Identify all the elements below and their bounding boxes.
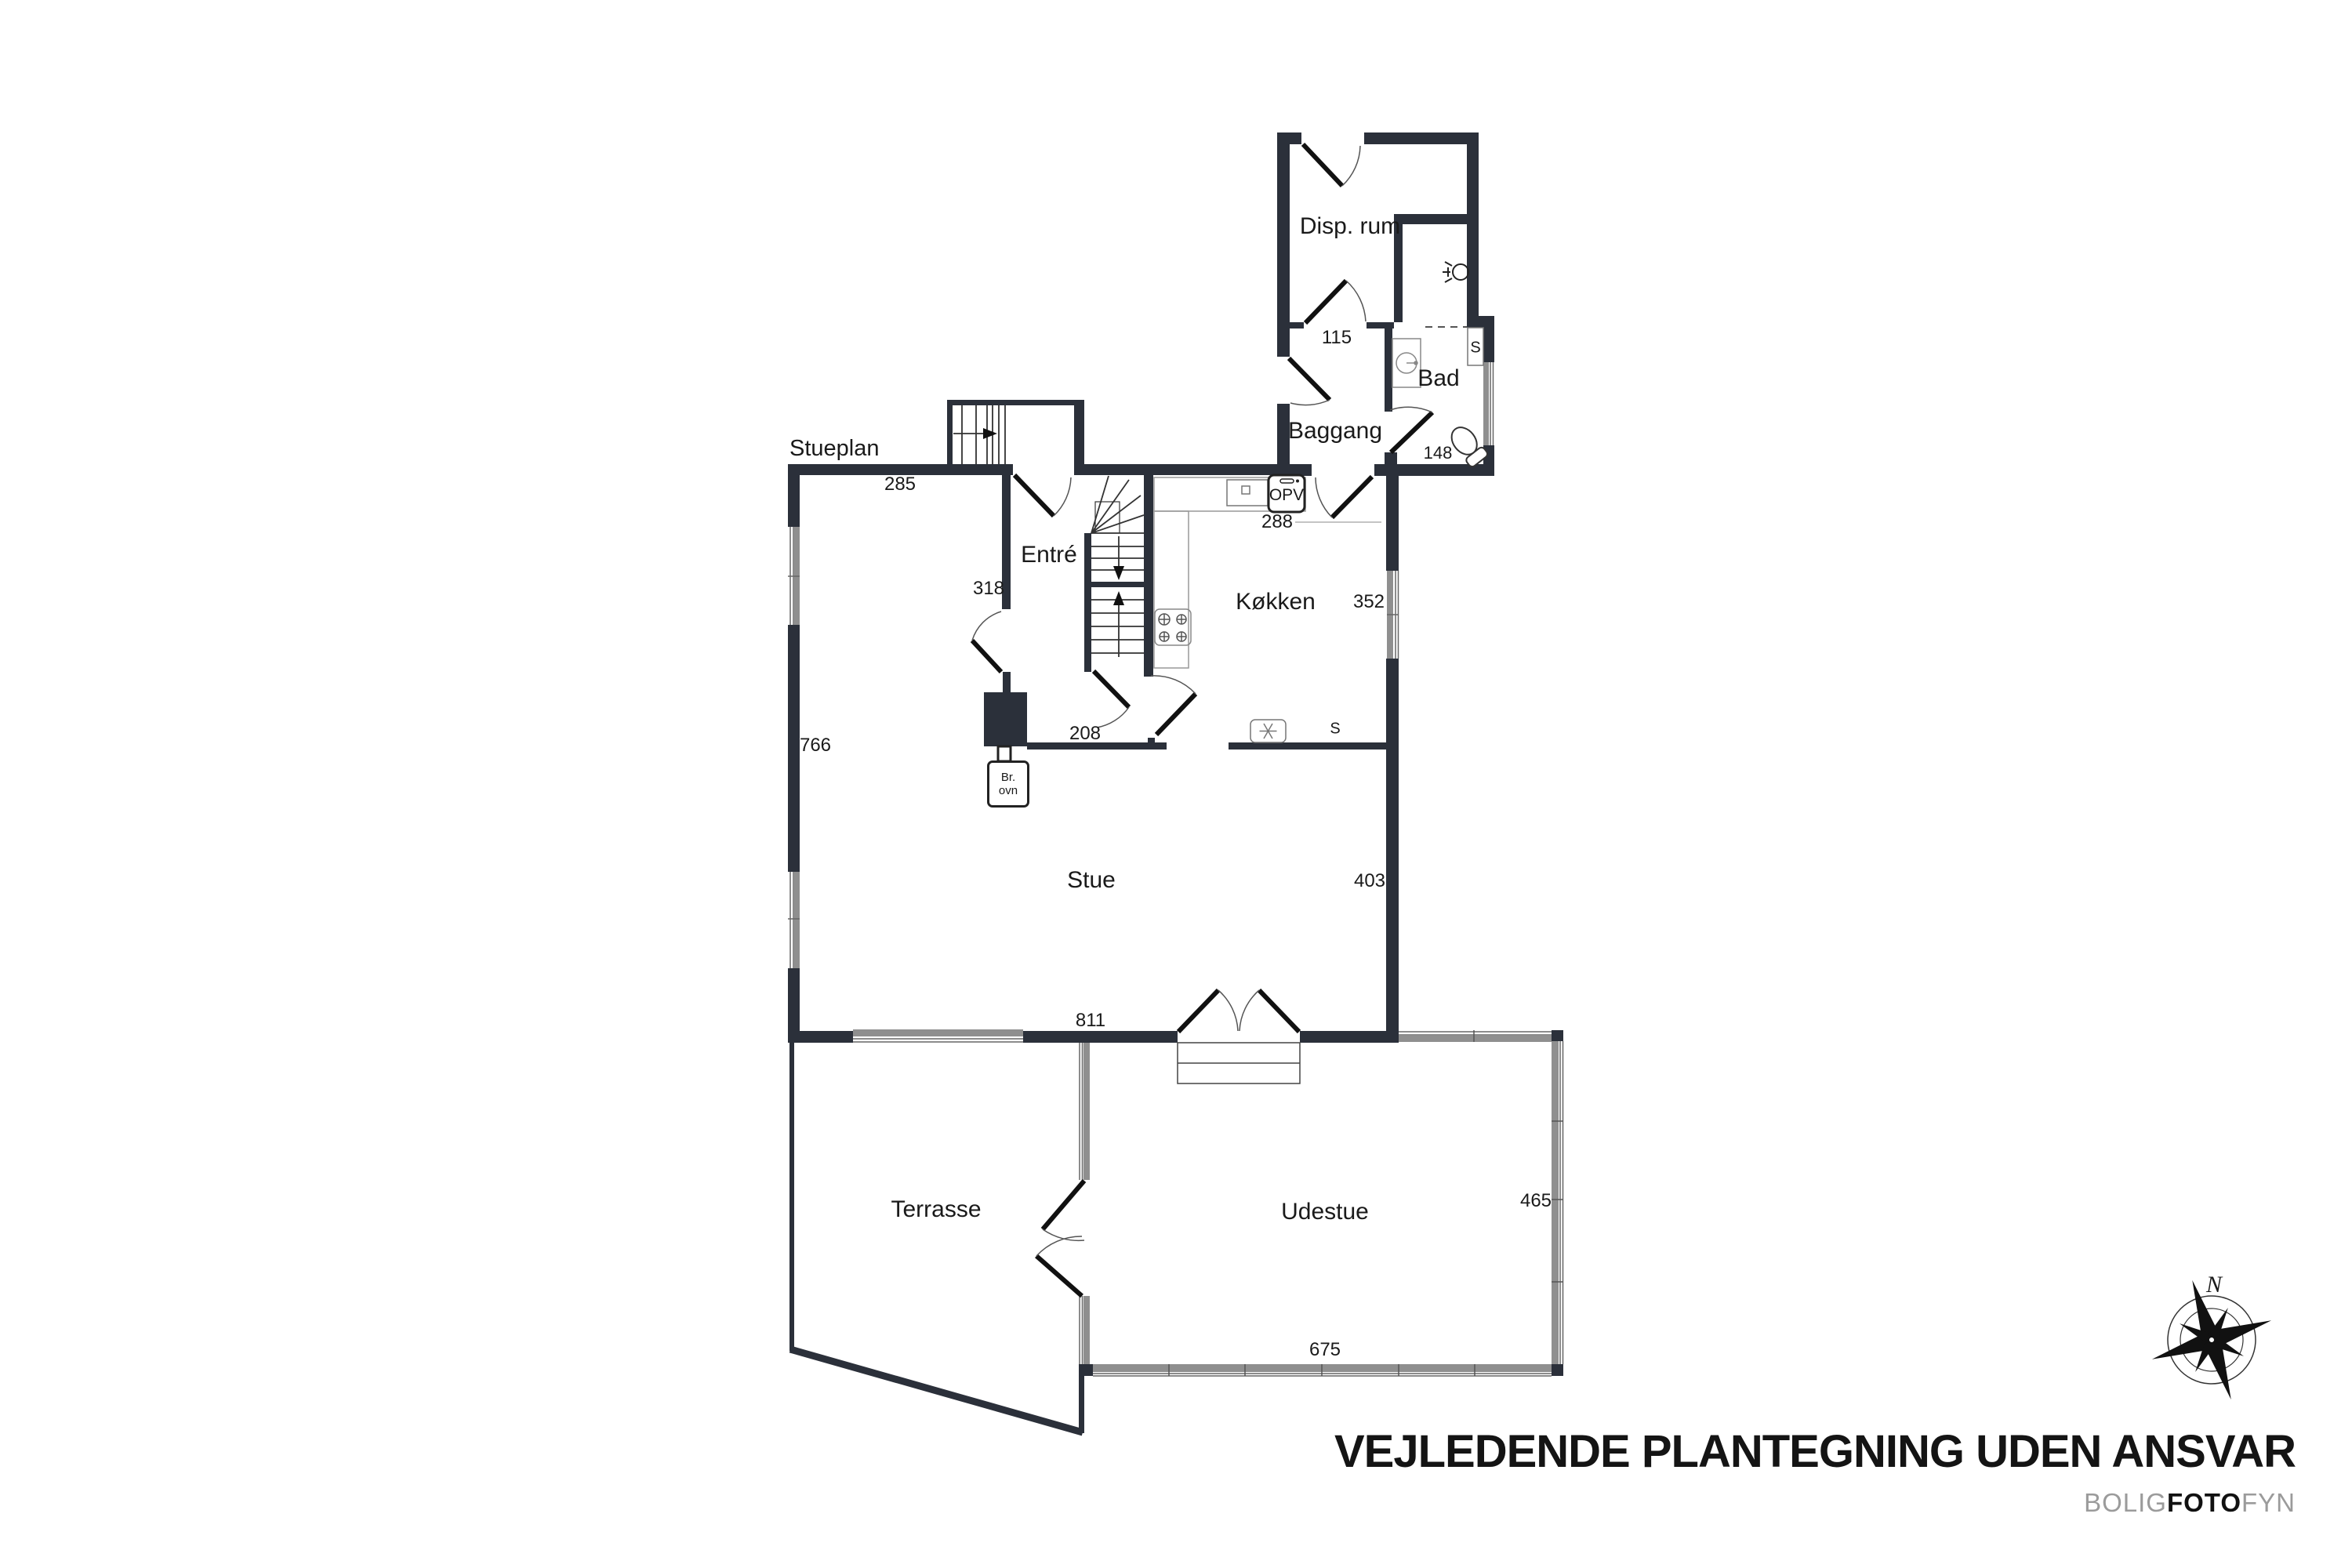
windows-layer	[788, 362, 1563, 1376]
floorplan-page: Stueplan Disp. rum Baggang Bad Entré Køk…	[0, 0, 2352, 1568]
room-label-kokken: Køkken	[1236, 589, 1316, 615]
terrace-slanted-edge	[790, 1349, 1083, 1432]
room-label-disp-rum: Disp. rum	[1300, 213, 1400, 240]
dishwasher-label: OPV	[1269, 486, 1304, 505]
measurement-148: 148	[1424, 443, 1453, 463]
compass-north-label: N	[2206, 1272, 2222, 1298]
window	[853, 1029, 1023, 1043]
kitchen-cabinet-label: S	[1330, 720, 1340, 739]
brand-logo: BOLIGFOTOFYN	[2084, 1488, 2296, 1518]
room-label-terrasse: Terrasse	[891, 1196, 981, 1223]
window-band	[1093, 1364, 1552, 1376]
fireplace	[984, 692, 1027, 761]
brand-part-bolig: BOLIG	[2084, 1488, 2167, 1517]
floorplan-drawing	[0, 0, 2352, 1568]
measurement-208: 208	[1069, 723, 1101, 745]
walls-layer	[788, 132, 1563, 1433]
measurement-352: 352	[1353, 591, 1385, 613]
plan-title: Stueplan	[789, 436, 880, 462]
room-label-bad: Bad	[1417, 365, 1459, 392]
brand-part-foto: FOTO	[2167, 1488, 2241, 1517]
measurement-285: 285	[884, 474, 916, 495]
window	[1483, 362, 1494, 445]
window-band	[1552, 1041, 1563, 1364]
measurement-675: 675	[1309, 1339, 1341, 1361]
stove-icon	[1155, 609, 1191, 645]
udestue-steps	[1178, 1043, 1300, 1083]
fridge-icon	[1250, 720, 1286, 742]
kitchen-sink	[1227, 480, 1268, 506]
toilet-icon	[1446, 423, 1489, 468]
wood-stove-label-line1: Br.	[1001, 771, 1015, 784]
window-band	[1399, 1030, 1552, 1042]
brand-part-fyn: FYN	[2241, 1488, 2296, 1517]
lamp-icon	[1443, 262, 1468, 282]
room-label-entre: Entré	[1021, 542, 1077, 568]
measurement-811: 811	[1076, 1010, 1105, 1032]
exterior-stair-landing	[953, 405, 1005, 464]
doors-layer	[972, 144, 1432, 1296]
wood-stove-label-line2: ovn	[999, 784, 1018, 797]
staircase	[1091, 476, 1144, 657]
bath-sink	[1392, 339, 1421, 387]
bath-cabinet-label: S	[1470, 339, 1480, 358]
disclaimer-text: VEJLEDENDE PLANTEGNING UDEN ANSVAR	[1334, 1425, 2296, 1478]
wood-stove-label: Br. ovn	[987, 760, 1029, 808]
measurement-318: 318	[973, 578, 1004, 600]
measurement-288: 288	[1261, 511, 1293, 533]
measurement-115: 115	[1322, 327, 1352, 349]
measurement-465: 465	[1520, 1190, 1552, 1212]
room-label-udestue: Udestue	[1281, 1199, 1369, 1225]
room-label-baggang: Baggang	[1288, 418, 1382, 445]
room-label-stue: Stue	[1067, 867, 1116, 894]
measurement-403: 403	[1354, 870, 1385, 892]
measurement-766: 766	[800, 735, 831, 757]
window	[788, 872, 800, 968]
window	[1387, 571, 1399, 659]
window	[788, 527, 800, 625]
window-band	[1080, 1043, 1090, 1364]
